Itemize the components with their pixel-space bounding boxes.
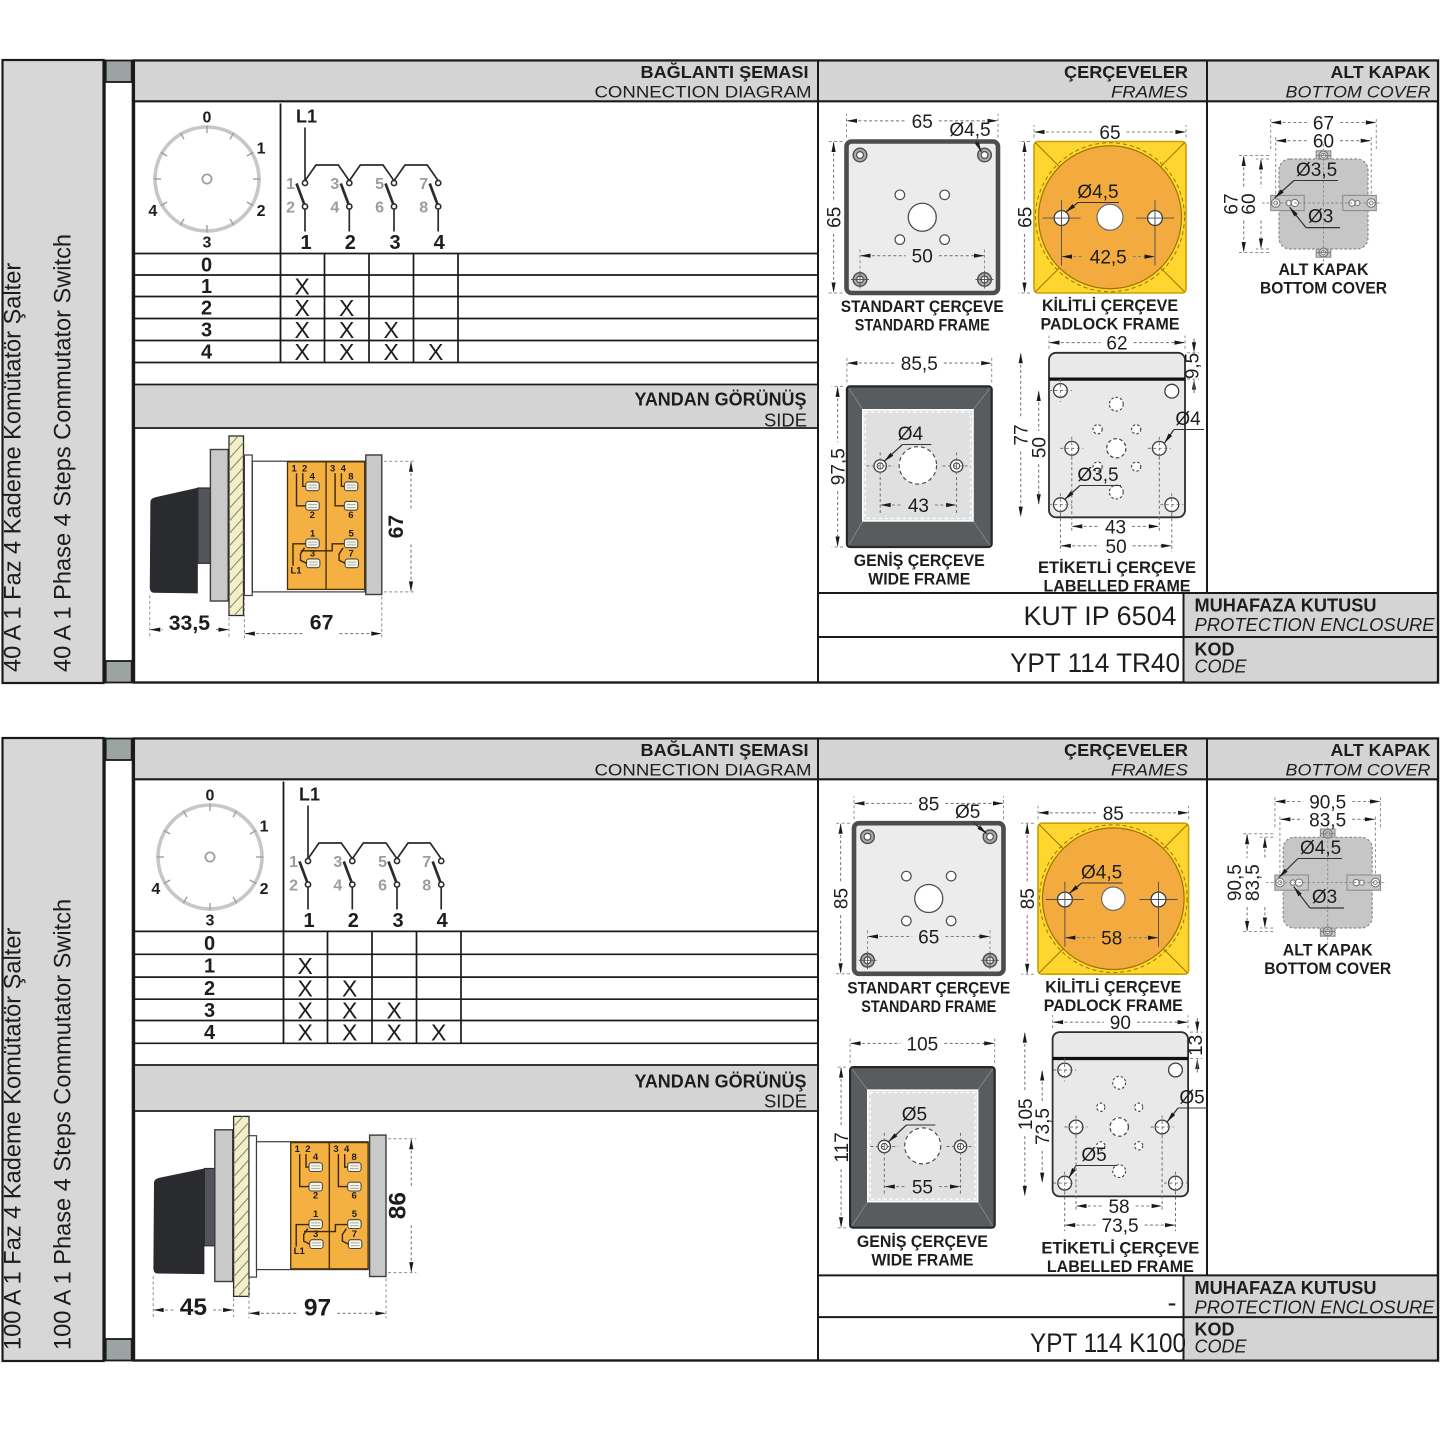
svg-text:100 A 1 Phase 4 Steps Commutat: 100 A 1 Phase 4 Steps Commutator Switch [51,899,77,1350]
svg-text:1: 1 [257,141,266,158]
svg-text:2: 2 [302,463,307,474]
svg-text:X: X [384,339,399,365]
svg-text:5: 5 [375,176,384,193]
svg-text:Ø5: Ø5 [902,1105,927,1126]
svg-text:PROTECTION ENCLOSURE: PROTECTION ENCLOSURE [1195,615,1436,635]
svg-text:85,5: 85,5 [901,354,938,375]
svg-text:3: 3 [330,463,335,474]
svg-text:3: 3 [313,1229,318,1240]
svg-text:2: 2 [204,978,215,1000]
svg-text:50: 50 [1030,437,1051,458]
svg-text:STANDARD FRAME: STANDARD FRAME [861,998,996,1016]
svg-text:4: 4 [201,342,213,364]
svg-text:-: - [1168,1287,1177,1317]
svg-text:3: 3 [333,854,342,871]
svg-text:ALT KAPAK: ALT KAPAK [1331,62,1431,82]
svg-text:Ø4,5: Ø4,5 [1300,838,1341,859]
svg-text:62: 62 [1106,334,1127,355]
svg-text:L1: L1 [294,1246,306,1257]
svg-text:CONNECTION DIAGRAM: CONNECTION DIAGRAM [595,83,812,102]
svg-text:2: 2 [305,1144,310,1155]
svg-text:100 A 1 Faz 4 Kademe Komütatör: 100 A 1 Faz 4 Kademe Komütatör Şalter [1,928,27,1350]
svg-text:ETİKETLİ ÇERÇEVE: ETİKETLİ ÇERÇEVE [1041,1240,1199,1258]
svg-text:2: 2 [257,203,266,220]
svg-text:4: 4 [341,463,347,474]
svg-text:CONNECTION DIAGRAM: CONNECTION DIAGRAM [595,761,812,780]
svg-text:Ø5: Ø5 [1179,1088,1204,1109]
svg-text:ALT KAPAK: ALT KAPAK [1331,740,1431,760]
svg-text:85: 85 [832,888,853,909]
svg-text:1: 1 [286,176,295,193]
svg-text:65: 65 [912,112,933,133]
svg-text:2: 2 [345,232,356,254]
svg-text:9,5: 9,5 [1183,353,1204,379]
svg-text:65: 65 [1016,207,1037,228]
svg-text:FRAMES: FRAMES [1111,761,1189,780]
svg-text:Ø3,5: Ø3,5 [1296,160,1337,181]
svg-text:97: 97 [304,1294,331,1321]
svg-text:3: 3 [310,548,315,559]
svg-text:105: 105 [907,1034,939,1055]
svg-text:0: 0 [201,254,212,276]
svg-text:BOTTOM COVER: BOTTOM COVER [1260,280,1387,298]
svg-text:MUHAFAZA KUTUSU: MUHAFAZA KUTUSU [1195,1278,1377,1298]
svg-text:4: 4 [204,1022,216,1044]
svg-text:X: X [342,1019,357,1045]
svg-text:BOTTOM COVER: BOTTOM COVER [1264,960,1391,978]
svg-text:LABELLED FRAME: LABELLED FRAME [1047,1258,1194,1276]
svg-text:YPT 114 K100: YPT 114 K100 [1030,1328,1186,1358]
svg-text:2: 2 [201,298,212,320]
svg-text:BOTTOM COVER: BOTTOM COVER [1286,761,1431,780]
svg-text:YANDAN GÖRÜNÜŞ: YANDAN GÖRÜNÜŞ [635,1072,807,1092]
svg-text:8: 8 [419,199,428,216]
svg-text:1: 1 [295,1144,301,1155]
svg-text:WIDE FRAME: WIDE FRAME [868,571,970,589]
svg-text:YPT 114 TR40: YPT 114 TR40 [1010,648,1180,678]
svg-text:33,5: 33,5 [169,612,210,635]
svg-text:4: 4 [151,881,160,898]
svg-text:3: 3 [392,910,403,932]
svg-text:STANDARD FRAME: STANDARD FRAME [855,317,990,335]
svg-text:1: 1 [291,463,297,474]
svg-text:85: 85 [1103,804,1124,825]
svg-text:4: 4 [333,877,342,894]
svg-text:73,5: 73,5 [1033,1108,1054,1145]
svg-text:0: 0 [203,109,212,126]
svg-text:83,5: 83,5 [1309,810,1346,831]
svg-text:2: 2 [313,1191,318,1202]
svg-text:L1: L1 [299,785,320,805]
svg-text:0: 0 [204,933,215,955]
svg-text:PADLOCK FRAME: PADLOCK FRAME [1041,316,1180,334]
svg-text:73,5: 73,5 [1102,1216,1139,1237]
svg-text:50: 50 [1106,537,1127,558]
svg-text:40 A 1 Phase 4 Steps Commutato: 40 A 1 Phase 4 Steps Commutator Switch [51,234,77,672]
svg-text:1: 1 [260,819,269,836]
svg-text:Ø3: Ø3 [1312,887,1337,908]
svg-text:X: X [298,1019,313,1045]
svg-text:3: 3 [333,1144,338,1155]
svg-text:65: 65 [1099,123,1120,144]
svg-text:3: 3 [204,1000,215,1022]
svg-text:Ø4: Ø4 [1175,409,1201,430]
svg-text:83,5: 83,5 [1243,864,1264,901]
svg-text:2: 2 [310,510,315,521]
svg-text:MUHAFAZA KUTUSU: MUHAFAZA KUTUSU [1195,596,1377,616]
svg-text:SIDE: SIDE [764,1092,807,1112]
svg-text:58: 58 [1108,1197,1129,1218]
svg-text:WIDE FRAME: WIDE FRAME [871,1252,973,1270]
svg-text:1: 1 [303,910,314,932]
svg-text:117: 117 [832,1132,853,1162]
svg-text:7: 7 [352,1229,357,1240]
svg-text:55: 55 [912,1178,933,1199]
svg-text:2: 2 [348,910,359,932]
svg-text:Ø5: Ø5 [1081,1145,1106,1166]
svg-text:85: 85 [918,794,939,815]
svg-text:Ø4,5: Ø4,5 [1077,182,1118,203]
svg-text:1: 1 [289,854,298,871]
svg-text:3: 3 [203,234,212,251]
svg-text:4: 4 [437,910,449,932]
svg-text:6: 6 [352,1191,357,1202]
svg-text:0: 0 [206,787,215,804]
svg-text:50: 50 [912,247,933,268]
svg-text:ÇERÇEVELER: ÇERÇEVELER [1064,740,1188,760]
svg-text:60: 60 [1313,132,1334,153]
svg-text:86: 86 [384,1192,411,1219]
svg-text:X: X [431,1019,446,1045]
svg-text:60: 60 [1239,193,1260,214]
svg-text:Ø3,5: Ø3,5 [1077,465,1118,486]
svg-text:KUT IP 6504: KUT IP 6504 [1024,601,1177,631]
svg-text:4: 4 [434,232,446,254]
svg-text:8: 8 [352,1152,357,1163]
svg-text:4: 4 [313,1152,319,1163]
svg-text:Ø5: Ø5 [955,802,980,823]
svg-text:X: X [295,339,310,365]
svg-text:7: 7 [422,854,431,871]
svg-text:4: 4 [148,203,157,220]
svg-text:1: 1 [204,956,215,978]
svg-text:FRAMES: FRAMES [1111,83,1189,102]
svg-text:2: 2 [260,881,269,898]
svg-text:43: 43 [908,496,929,517]
svg-text:2: 2 [286,199,295,216]
svg-text:L1: L1 [290,565,302,576]
svg-text:58: 58 [1101,929,1122,950]
svg-text:90: 90 [1110,1013,1131,1034]
svg-text:ALT KAPAK: ALT KAPAK [1279,261,1369,279]
svg-text:L1: L1 [296,107,317,127]
svg-text:3: 3 [201,320,212,342]
svg-text:97,5: 97,5 [829,448,850,485]
svg-text:8: 8 [422,877,431,894]
svg-text:Ø4,5: Ø4,5 [949,120,990,141]
svg-text:6: 6 [348,510,353,521]
svg-text:5: 5 [348,528,354,539]
svg-text:GENİŞ ÇERÇEVE: GENİŞ ÇERÇEVE [857,1233,988,1251]
svg-text:4: 4 [330,199,339,216]
svg-text:3: 3 [389,232,400,254]
svg-text:6: 6 [378,877,387,894]
svg-text:CODE: CODE [1195,1337,1248,1357]
svg-text:YANDAN GÖRÜNÜŞ: YANDAN GÖRÜNÜŞ [635,390,807,410]
svg-text:45: 45 [180,1294,207,1321]
svg-text:65: 65 [825,207,846,228]
svg-text:67: 67 [385,515,408,539]
svg-text:GENİŞ ÇERÇEVE: GENİŞ ÇERÇEVE [854,552,985,570]
svg-text:1: 1 [313,1209,319,1220]
svg-text:40 A 1 Faz 4 Kademe Komütatör: 40 A 1 Faz 4 Kademe Komütatör Şalter [1,263,27,672]
svg-text:3: 3 [330,176,339,193]
svg-text:ÇERÇEVELER: ÇERÇEVELER [1064,62,1188,82]
svg-text:Ø3: Ø3 [1308,207,1333,228]
svg-text:X: X [428,339,443,365]
svg-text:6: 6 [375,199,384,216]
svg-text:4: 4 [310,471,316,482]
svg-text:43: 43 [1105,517,1126,538]
svg-text:5: 5 [352,1209,358,1220]
svg-text:KİLİTLİ ÇERÇEVE: KİLİTLİ ÇERÇEVE [1042,297,1178,315]
svg-text:PROTECTION ENCLOSURE: PROTECTION ENCLOSURE [1195,1297,1436,1317]
svg-text:STANDART ÇERÇEVE: STANDART ÇERÇEVE [841,298,1004,316]
svg-text:ETİKETLİ ÇERÇEVE: ETİKETLİ ÇERÇEVE [1038,559,1196,577]
svg-text:5: 5 [378,854,387,871]
svg-text:KİLİTLİ ÇERÇEVE: KİLİTLİ ÇERÇEVE [1045,979,1181,997]
svg-text:BAĞLANTI ŞEMASI: BAĞLANTI ŞEMASI [641,739,809,760]
svg-text:65: 65 [918,928,939,949]
svg-text:Ø4: Ø4 [898,424,924,445]
svg-text:4: 4 [344,1144,350,1155]
svg-text:8: 8 [348,471,353,482]
svg-text:42,5: 42,5 [1090,248,1127,269]
svg-text:Ø4,5: Ø4,5 [1081,863,1122,884]
svg-text:BOTTOM COVER: BOTTOM COVER [1286,83,1431,102]
svg-text:STANDART ÇERÇEVE: STANDART ÇERÇEVE [847,980,1010,998]
svg-text:X: X [339,339,354,365]
svg-text:1: 1 [201,276,212,298]
svg-text:1: 1 [300,232,311,254]
svg-text:CODE: CODE [1195,657,1248,677]
svg-text:BAĞLANTI ŞEMASI: BAĞLANTI ŞEMASI [641,61,809,82]
svg-text:ALT KAPAK: ALT KAPAK [1283,942,1373,960]
svg-text:85: 85 [1018,888,1039,909]
svg-text:7: 7 [348,548,353,559]
svg-text:SIDE: SIDE [764,411,807,431]
svg-text:13: 13 [1186,1035,1207,1056]
svg-text:67: 67 [310,612,334,635]
svg-text:7: 7 [419,176,428,193]
svg-text:2: 2 [289,877,298,894]
svg-text:3: 3 [206,912,215,929]
svg-text:1: 1 [310,528,316,539]
svg-text:X: X [387,1019,402,1045]
